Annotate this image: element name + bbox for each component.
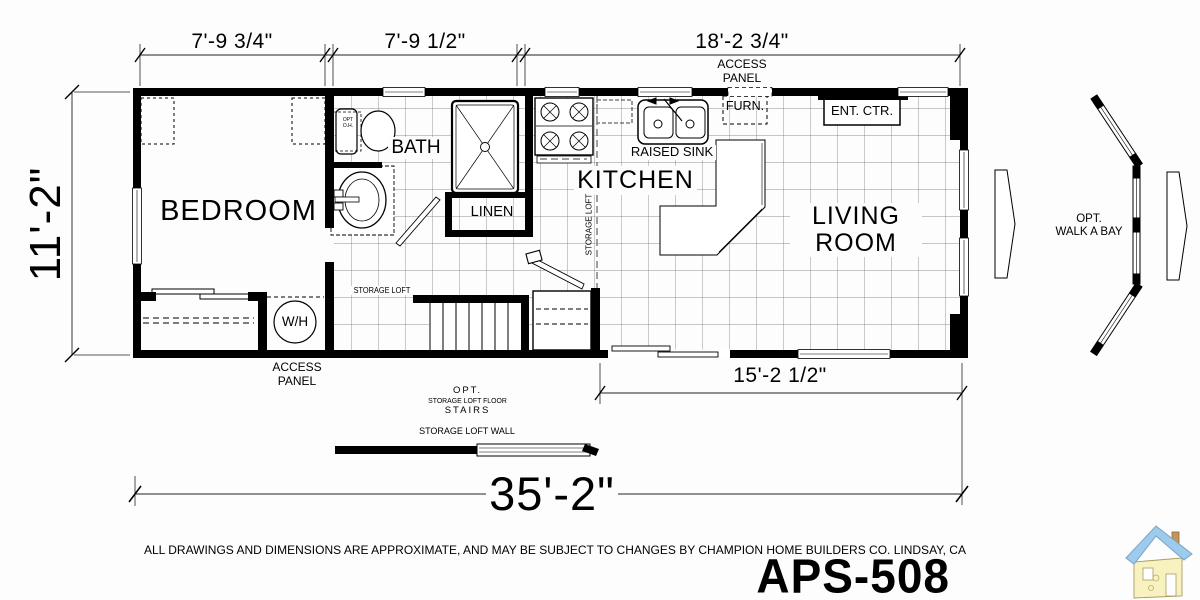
dimension-bottom-living: 15'-2 1/2" — [680, 364, 880, 388]
access-panel-top-label: ACCESS PANEL — [712, 58, 772, 86]
dimension-left: 11'-2" — [22, 114, 70, 334]
walk-a-bay-line2: WALK A BAY — [1028, 226, 1150, 239]
storage-loft-wall-label: STORAGE LOFT WALL — [397, 426, 537, 436]
storage-loft-label-left: STORAGE LOFT — [344, 286, 419, 295]
living-room-label-text: LIVING ROOM — [790, 203, 922, 257]
dimension-top-right: 18'-2 3/4" — [662, 30, 822, 54]
shower-drain — [481, 143, 490, 152]
bath-label: BATH — [378, 137, 454, 159]
toilet-tank — [336, 109, 357, 154]
dimension-top-left: 7'-9 3/4" — [152, 30, 312, 54]
dimension-overall-text: 35'-2" — [486, 467, 618, 521]
opt-stairs-label: OPT. STORAGE LOFT FLOOR STAIRS — [395, 386, 540, 416]
dimension-top-middle: 7'-9 1/2" — [345, 30, 505, 54]
opt-overhead-label: OPT O.H. — [337, 117, 359, 129]
dimension-overall: 35'-2" — [402, 467, 702, 521]
entertainment-center-label: ENT. CTR. — [826, 104, 898, 119]
access-panel-bottom-label: ACCESS PANEL — [267, 361, 327, 389]
pointer-arrow — [1167, 172, 1187, 280]
storage-loft-left-text: STORAGE LOFT — [351, 286, 413, 295]
raised-sink-label: RAISED SINK — [612, 145, 732, 160]
pointer-arrow — [995, 170, 1015, 278]
patio-slider-panel — [658, 352, 718, 357]
closet-slider-panel — [152, 289, 214, 294]
opt-stairs-line3: STAIRS — [395, 406, 540, 417]
walk-a-bay-label: OPT. WALK A BAY — [1028, 213, 1150, 239]
storage-loft-wall-detail — [335, 444, 599, 456]
kitchen-label: KITCHEN — [553, 166, 718, 195]
linen-label: LINEN — [452, 204, 532, 221]
logo-door — [1166, 574, 1176, 596]
loft-landing — [533, 291, 591, 350]
faucet — [335, 197, 359, 202]
furnace-label: FURN. — [723, 99, 767, 113]
overhead-cabinet-left — [141, 98, 174, 144]
model-number: APS-508 — [650, 548, 950, 600]
overhead-cabinet-right — [292, 98, 325, 144]
walk-a-bay-line1: OPT. — [1028, 213, 1150, 226]
bedroom-label: BEDROOM — [156, 195, 321, 228]
water-heater-label: W/H — [273, 314, 317, 330]
builder-logo — [1126, 526, 1192, 598]
logo-window — [1143, 568, 1153, 580]
living-room-label: LIVING ROOM — [790, 203, 922, 257]
bath-label-text: BATH — [388, 137, 443, 159]
floor-plan-page: 7'-9 3/4" 7'-9 1/2" 18'-2 3/4" ACCESS PA… — [0, 0, 1200, 600]
patio-slider-panel — [612, 346, 670, 351]
access-panel-opening — [728, 88, 772, 97]
raised-sink-text: RAISED SINK — [628, 145, 716, 160]
opt-overhead-line2: O.H. — [337, 123, 359, 129]
logo-roof — [1126, 526, 1192, 564]
storage-loft-label-vertical: STORAGE LOFT — [584, 190, 595, 260]
opt-stairs-line2: STORAGE LOFT FLOOR — [401, 397, 534, 406]
